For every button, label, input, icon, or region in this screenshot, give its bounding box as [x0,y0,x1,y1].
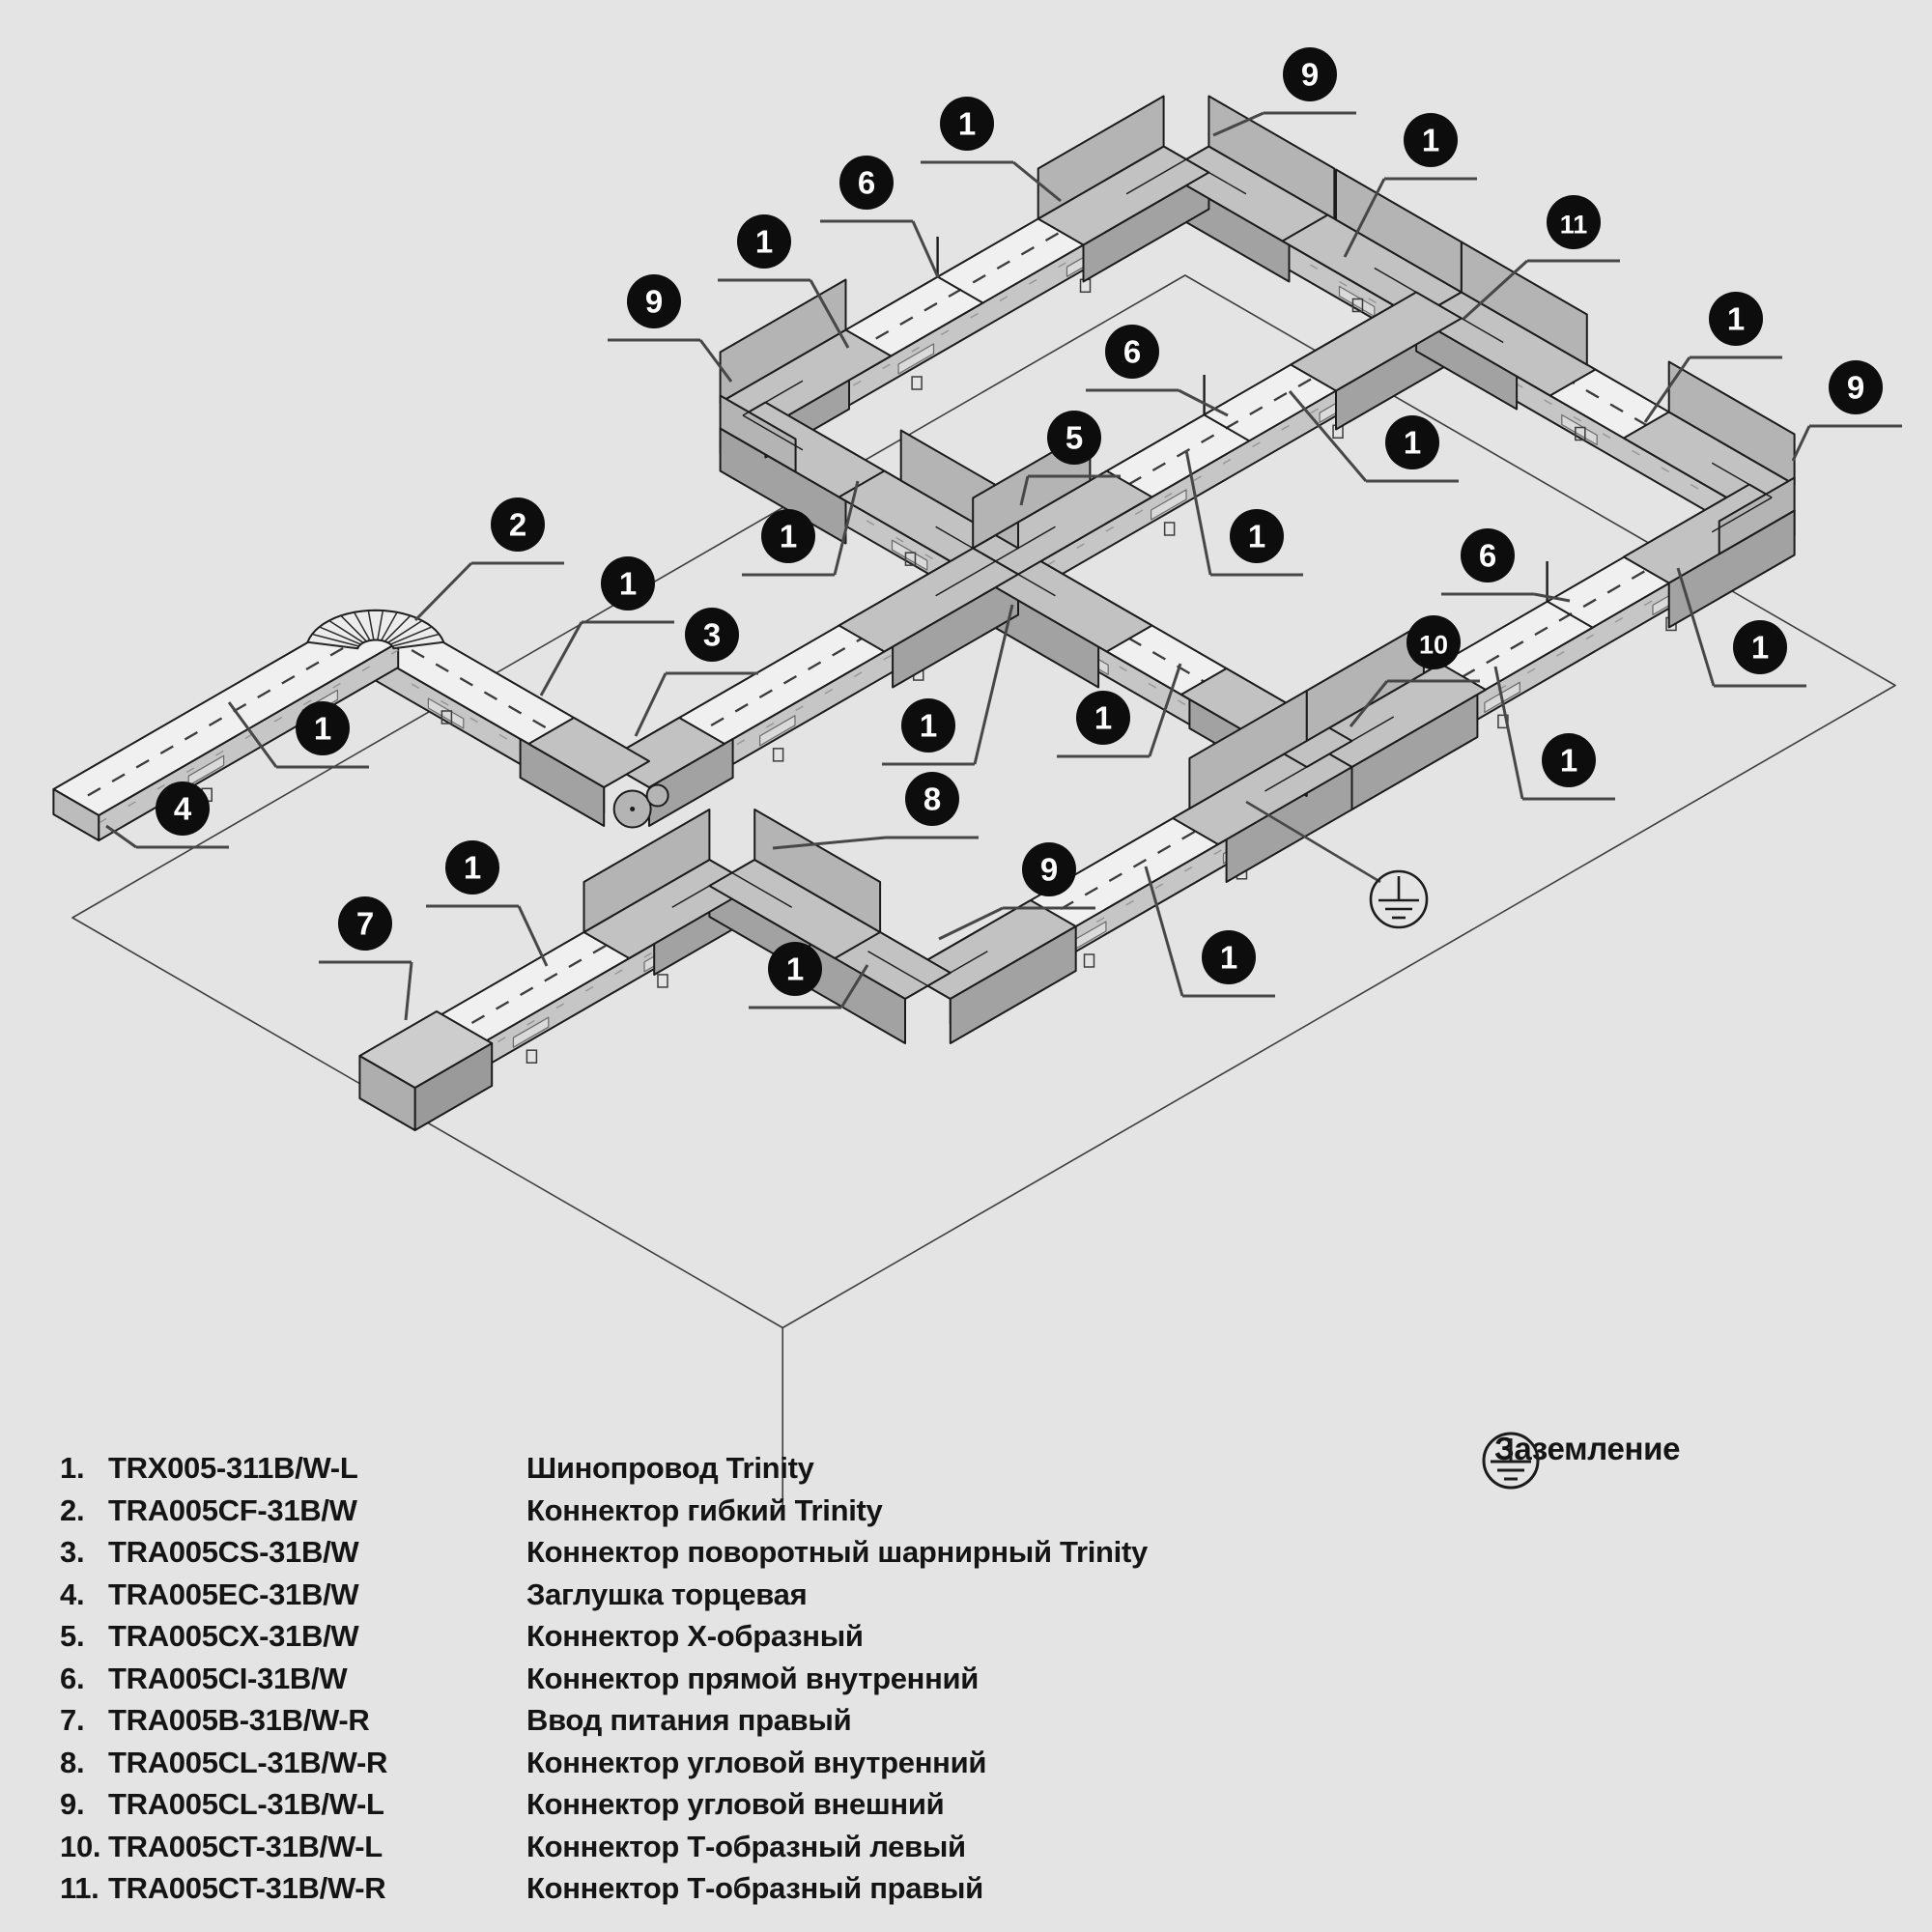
legend-part-code: TRA005CL-31B/W-R [108,1742,526,1784]
callout-1: 1 [921,97,1061,201]
legend-part-code: TRA005CT-31B/W-L [108,1826,526,1868]
callout-number: 1 [1248,519,1265,554]
callout-number: 11 [1560,211,1588,240]
legend-part-code: TRA005CF-31B/W [108,1490,526,1532]
ground-legend: Заземление [1481,1431,1680,1467]
callout-number: 6 [1123,334,1141,370]
legend-part-description: Коннектор гибкий Trinity [526,1490,1412,1532]
legend-row-11: 11.TRA005CT-31B/W-RКоннектор Т-образный … [60,1867,1412,1910]
callout-number: 6 [1479,538,1496,574]
legend-row-10: 10.TRA005CT-31B/W-LКоннектор Т-образный … [60,1826,1412,1868]
callout-number: 1 [1422,123,1439,158]
callout-number: 7 [356,906,374,942]
parts-legend: 1.TRX005-311B/W-LШинопровод Trinity2.TRA… [60,1447,1412,1910]
legend-number: 8. [60,1742,108,1784]
callout-number: 1 [786,952,804,987]
legend-number: 1. [60,1447,108,1490]
legend-number: 6. [60,1658,108,1700]
ground-icon [1481,1431,1541,1491]
callout-number: 6 [858,165,875,201]
callout-number: 8 [923,781,941,817]
callout-number: 1 [1404,425,1421,461]
legend-number: 7. [60,1699,108,1742]
legend-number: 4. [60,1574,108,1616]
legend-part-description: Коннектор Т-образный левый [526,1826,1412,1868]
diagram-stage: 916111191965121116310111141819711 1.TRX0… [0,0,1932,1932]
legend-part-code: TRA005CL-31B/W-L [108,1783,526,1826]
callout-1: 1 [426,840,547,966]
callout-number: 1 [464,850,481,886]
legend-part-description: Заглушка торцевая [526,1574,1412,1616]
legend-part-code: TRA005CI-31B/W [108,1658,526,1700]
legend-number: 5. [60,1615,108,1658]
legend-part-description: Коннектор Т-образный правый [526,1867,1412,1910]
legend-part-code: TRA005B-31B/W-R [108,1699,526,1742]
callout-2: 2 [415,497,564,620]
callout-number: 9 [645,284,663,320]
callout-number: 1 [619,566,637,602]
callout-number: 9 [1040,852,1058,888]
legend-row-1: 1.TRX005-311B/W-LШинопровод Trinity [60,1447,1412,1490]
legend-part-description: Шинопровод Trinity [526,1447,1412,1490]
callout-6: 6 [1086,325,1228,415]
callout-number: 5 [1065,420,1083,456]
legend-part-code: TRA005CT-31B/W-R [108,1867,526,1910]
callout-number: 1 [1727,301,1745,337]
legend-row-4: 4.TRA005EC-31B/WЗаглушка торцевая [60,1574,1412,1616]
legend-number: 3. [60,1531,108,1574]
callout-number: 2 [509,507,526,543]
callout-number: 1 [314,711,331,747]
callout-number: 3 [703,617,721,653]
legend-row-8: 8.TRA005CL-31B/W-RКоннектор угловой внут… [60,1742,1412,1784]
callout-number: 1 [1560,743,1577,779]
legend-part-description: Коннектор Х-образный [526,1615,1412,1658]
legend-number: 9. [60,1783,108,1826]
legend-part-code: TRA005CS-31B/W [108,1531,526,1574]
legend-part-description: Ввод питания правый [526,1699,1412,1742]
callout-number: 1 [1220,940,1237,976]
legend-part-description: Коннектор прямой внутренний [526,1658,1412,1700]
legend-part-code: TRA005EC-31B/W [108,1574,526,1616]
callout-9: 9 [608,274,731,382]
callout-6: 6 [1441,528,1570,601]
callout-6: 6 [820,156,938,277]
legend-part-code: TRX005-311B/W-L [108,1447,526,1490]
callout-number: 9 [1301,57,1319,93]
legend-number: 10. [60,1826,108,1868]
legend-part-description: Коннектор поворотный шарнирный Trinity [526,1531,1412,1574]
callout-number: 9 [1847,370,1864,406]
callout-1: 1 [541,556,674,696]
legend-part-code: TRA005CX-31B/W [108,1615,526,1658]
legend-row-5: 5.TRA005CX-31B/WКоннектор Х-образный [60,1615,1412,1658]
legend-row-3: 3.TRA005CS-31B/WКоннектор поворотный шар… [60,1531,1412,1574]
callout-number: 1 [1094,700,1112,736]
callout-7: 7 [319,896,412,1020]
callout-number: 10 [1419,631,1448,660]
legend-number: 11. [60,1867,108,1910]
callout-number: 1 [780,519,797,554]
callout-number: 4 [174,791,192,827]
callout-number: 1 [755,224,773,260]
legend-row-9: 9.TRA005CL-31B/W-LКоннектор угловой внеш… [60,1783,1412,1826]
callout-9: 9 [1793,360,1902,461]
legend-row-7: 7.TRA005B-31B/W-RВвод питания правый [60,1699,1412,1742]
legend-row-2: 2.TRA005CF-31B/WКоннектор гибкий Trinity [60,1490,1412,1532]
legend-part-description: Коннектор угловой внешний [526,1783,1412,1826]
callout-number: 1 [920,708,937,744]
legend-part-description: Коннектор угловой внутренний [526,1742,1412,1784]
callout-number: 1 [958,106,976,142]
callout-number: 1 [1751,630,1769,666]
legend-number: 2. [60,1490,108,1532]
legend-row-6: 6.TRA005CI-31B/WКоннектор прямой внутрен… [60,1658,1412,1700]
